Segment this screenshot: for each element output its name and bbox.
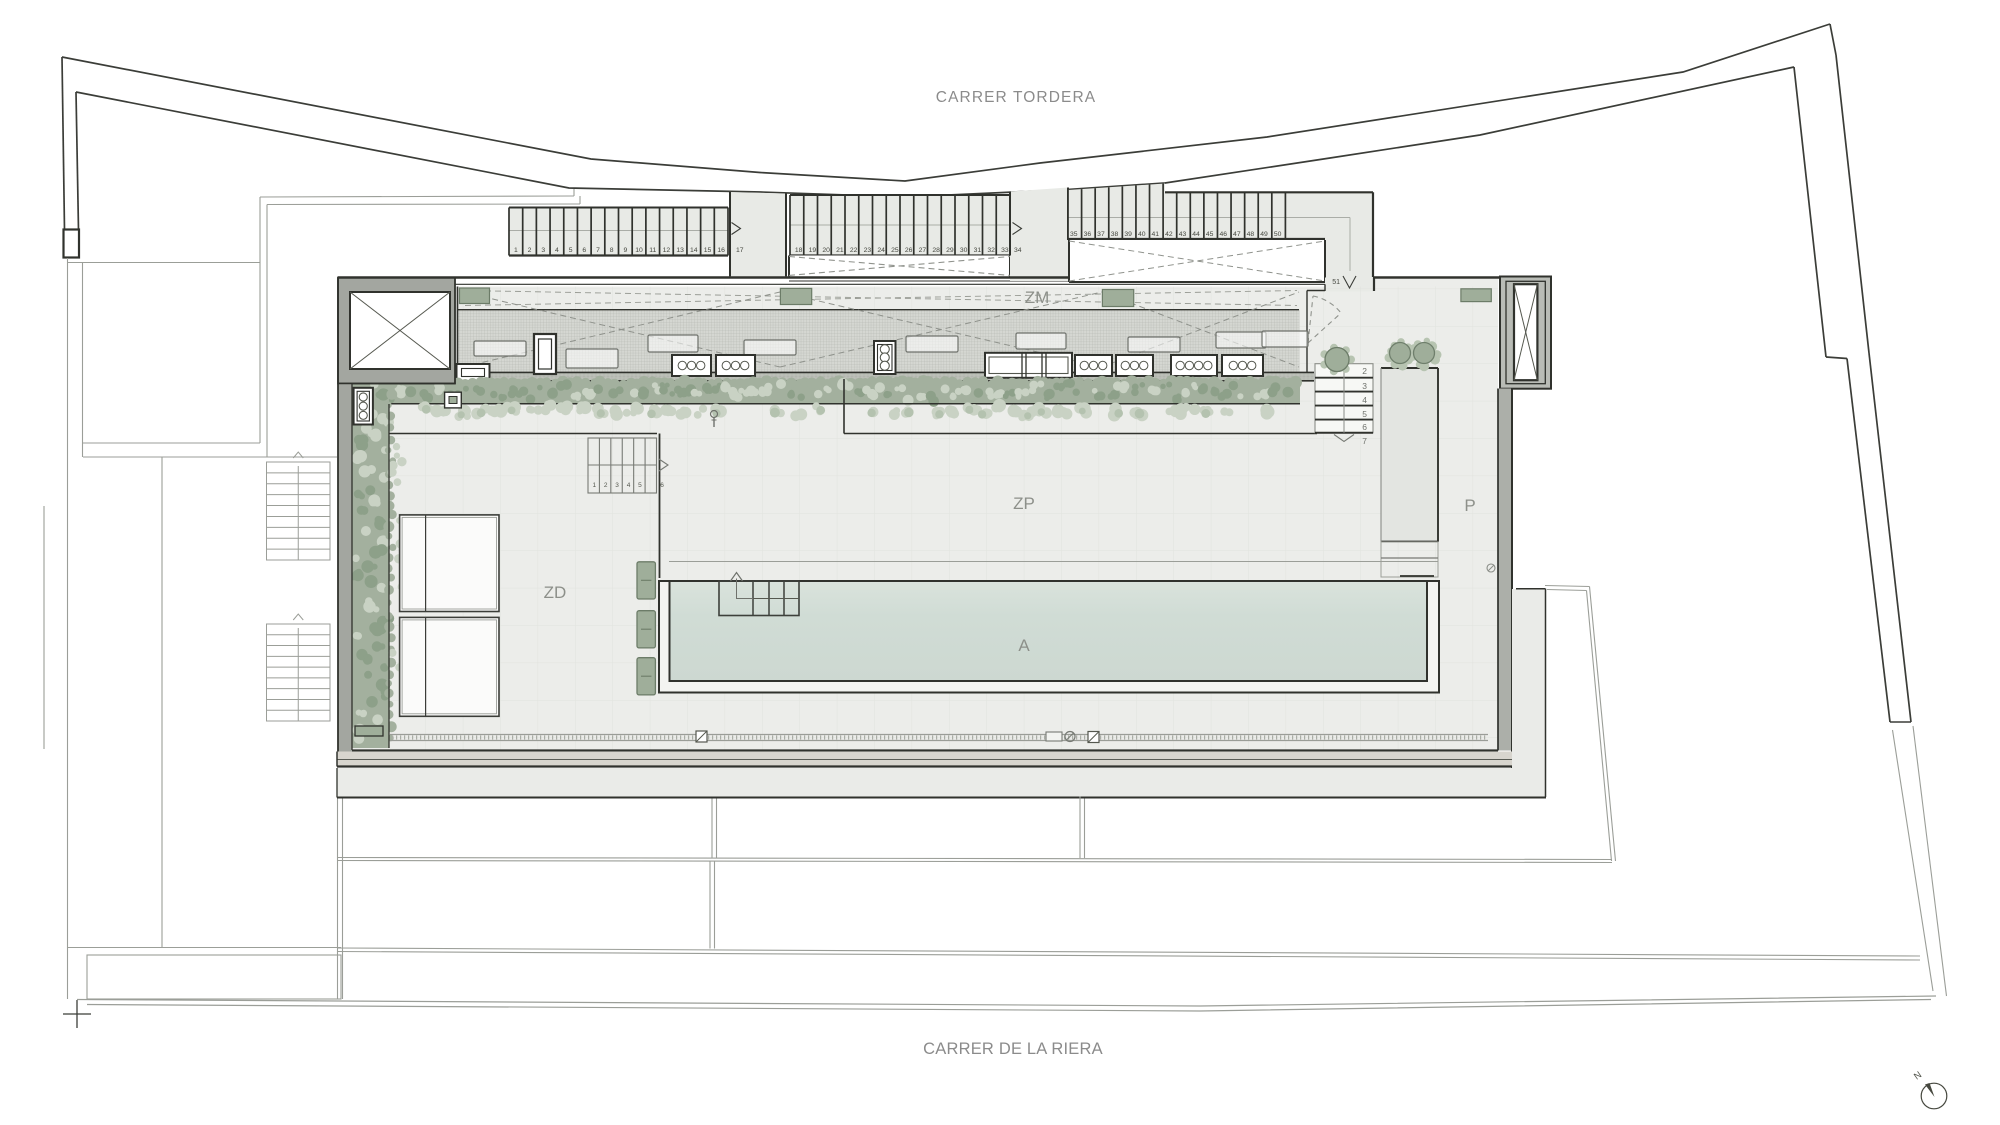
svg-text:35: 35 xyxy=(1070,231,1078,238)
svg-text:26: 26 xyxy=(905,247,913,254)
svg-text:P: P xyxy=(1464,496,1475,515)
svg-text:17: 17 xyxy=(736,247,744,254)
svg-text:1: 1 xyxy=(514,247,518,254)
svg-text:ZP: ZP xyxy=(1013,494,1035,513)
svg-text:3: 3 xyxy=(1362,381,1367,391)
svg-text:7: 7 xyxy=(1362,436,1367,446)
svg-text:16: 16 xyxy=(717,247,725,254)
svg-text:31: 31 xyxy=(974,247,982,254)
svg-text:4: 4 xyxy=(627,482,631,489)
svg-text:23: 23 xyxy=(864,247,872,254)
svg-text:CARRER DE LA RIERA: CARRER DE LA RIERA xyxy=(923,1040,1103,1058)
svg-text:43: 43 xyxy=(1179,231,1187,238)
svg-text:10: 10 xyxy=(635,247,643,254)
svg-text:2: 2 xyxy=(1362,366,1367,376)
svg-text:24: 24 xyxy=(877,247,885,254)
svg-text:3: 3 xyxy=(541,247,545,254)
svg-text:22: 22 xyxy=(850,247,858,254)
svg-text:ZM: ZM xyxy=(1025,288,1050,307)
svg-text:36: 36 xyxy=(1084,231,1092,238)
svg-text:50: 50 xyxy=(1274,231,1282,238)
svg-text:11: 11 xyxy=(649,247,656,254)
svg-text:14: 14 xyxy=(690,247,698,254)
svg-text:42: 42 xyxy=(1165,231,1173,238)
svg-text:18: 18 xyxy=(795,247,803,254)
svg-text:6: 6 xyxy=(1362,422,1367,432)
svg-text:2: 2 xyxy=(528,247,532,254)
svg-text:2: 2 xyxy=(604,482,608,489)
svg-text:3: 3 xyxy=(615,482,619,489)
svg-text:ZD: ZD xyxy=(544,583,567,602)
svg-text:6: 6 xyxy=(582,247,586,254)
svg-text:4: 4 xyxy=(1362,395,1367,405)
svg-text:1: 1 xyxy=(592,482,596,489)
svg-text:30: 30 xyxy=(960,247,968,254)
svg-text:32: 32 xyxy=(987,247,995,254)
svg-text:49: 49 xyxy=(1260,231,1268,238)
svg-text:48: 48 xyxy=(1247,231,1255,238)
svg-text:34: 34 xyxy=(1014,247,1022,254)
svg-text:45: 45 xyxy=(1206,231,1214,238)
svg-text:6: 6 xyxy=(660,482,664,489)
svg-text:7: 7 xyxy=(596,247,600,254)
svg-text:21: 21 xyxy=(836,247,844,254)
svg-text:4: 4 xyxy=(555,247,559,254)
svg-text:CARRER TORDERA: CARRER TORDERA xyxy=(936,89,1096,106)
svg-text:12: 12 xyxy=(663,247,671,254)
svg-text:40: 40 xyxy=(1138,231,1146,238)
svg-text:47: 47 xyxy=(1233,231,1241,238)
svg-text:13: 13 xyxy=(676,247,684,254)
svg-text:19: 19 xyxy=(809,247,817,254)
svg-text:27: 27 xyxy=(919,247,927,254)
svg-text:15: 15 xyxy=(704,247,712,254)
svg-text:20: 20 xyxy=(822,247,830,254)
svg-text:37: 37 xyxy=(1097,231,1105,238)
svg-text:33: 33 xyxy=(1001,247,1009,254)
svg-text:39: 39 xyxy=(1124,231,1132,238)
svg-text:51: 51 xyxy=(1332,279,1340,286)
svg-text:8: 8 xyxy=(610,247,614,254)
svg-text:5: 5 xyxy=(1362,409,1367,419)
svg-text:25: 25 xyxy=(891,247,899,254)
svg-text:5: 5 xyxy=(569,247,573,254)
svg-text:28: 28 xyxy=(932,247,940,254)
svg-text:44: 44 xyxy=(1192,231,1200,238)
svg-text:A: A xyxy=(1018,636,1030,655)
svg-text:9: 9 xyxy=(623,247,627,254)
svg-text:5: 5 xyxy=(638,482,642,489)
svg-text:46: 46 xyxy=(1219,231,1227,238)
svg-text:41: 41 xyxy=(1152,231,1160,238)
svg-text:38: 38 xyxy=(1111,231,1119,238)
svg-text:29: 29 xyxy=(946,247,954,254)
